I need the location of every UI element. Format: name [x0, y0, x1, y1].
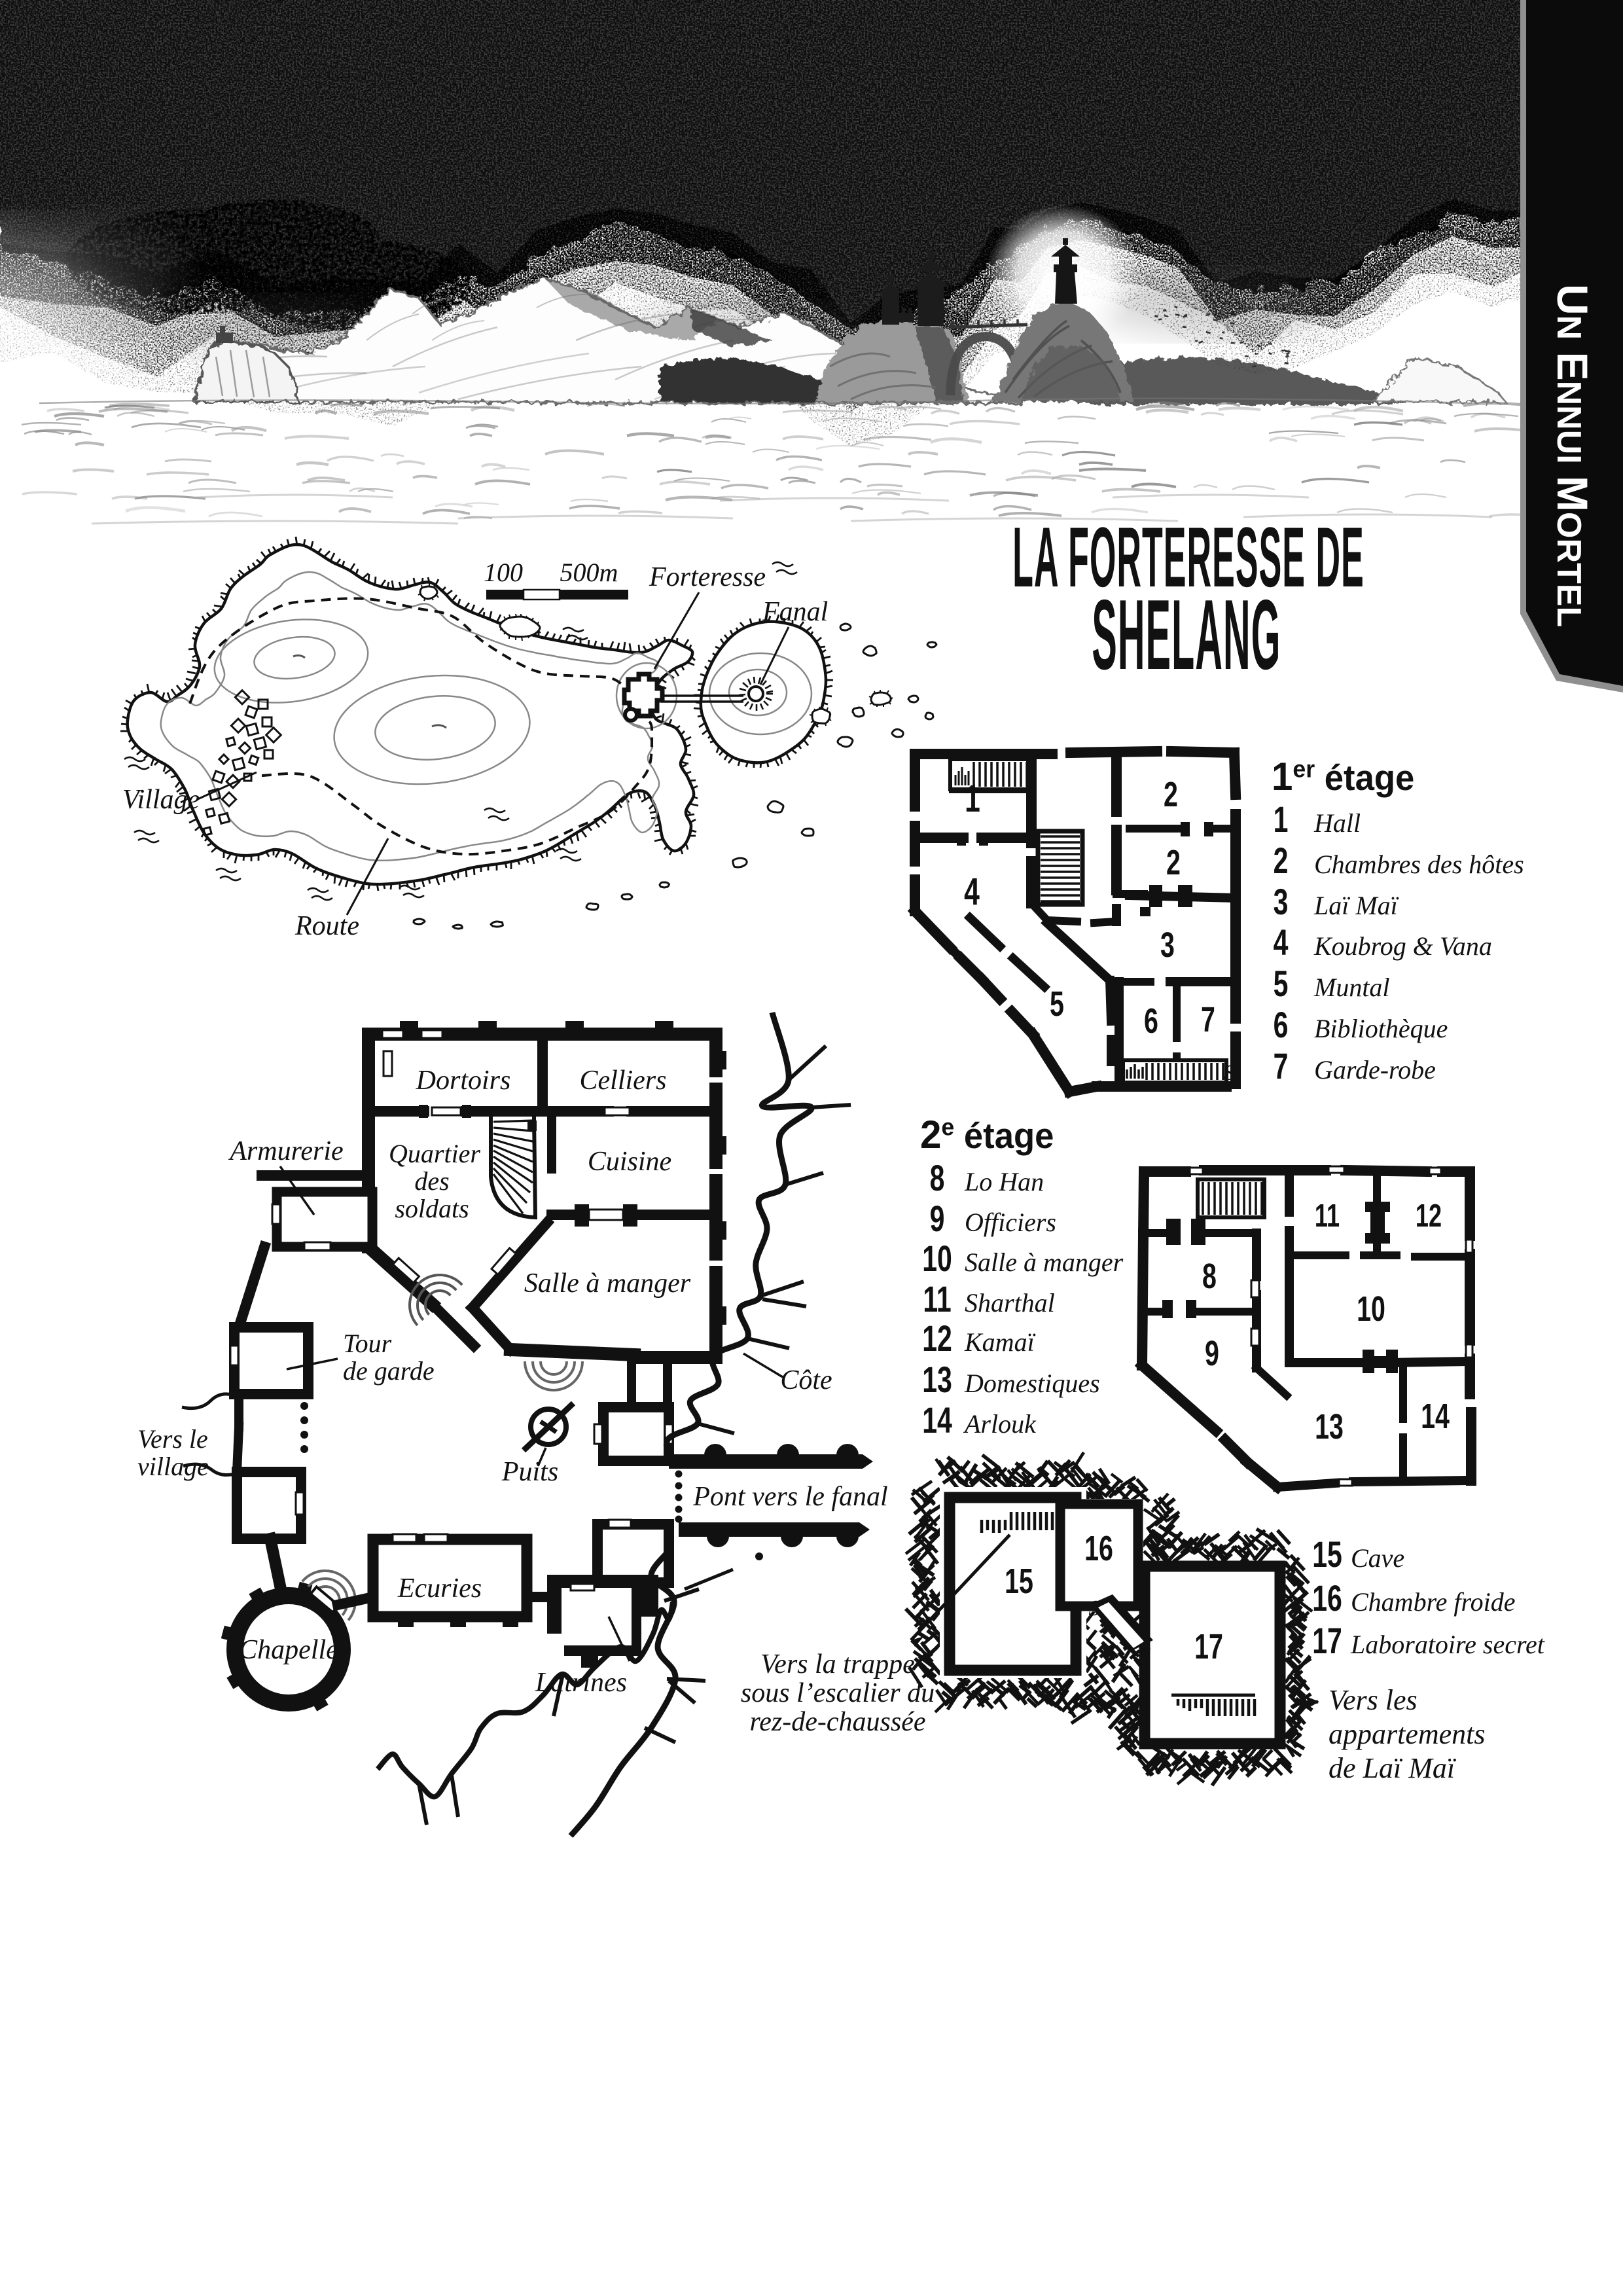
- svg-text:3: 3: [1160, 925, 1175, 964]
- svg-text:Officiers: Officiers: [965, 1208, 1056, 1237]
- svg-text:1: 1: [965, 778, 980, 820]
- svg-text:Tour: Tour: [343, 1329, 392, 1358]
- svg-text:12: 12: [1416, 1198, 1442, 1234]
- svg-text:5: 5: [1274, 964, 1289, 1005]
- svg-text:Vers la trappe: Vers la trappe: [760, 1649, 915, 1679]
- svg-text:Fanal: Fanal: [762, 597, 828, 627]
- svg-text:5: 5: [1050, 984, 1064, 1023]
- svg-text:Salle à manger: Salle à manger: [524, 1268, 691, 1299]
- svg-text:village: village: [137, 1452, 209, 1481]
- svg-text:10: 10: [1357, 1289, 1385, 1328]
- svg-text:Arlouk: Arlouk: [963, 1409, 1037, 1439]
- svg-text:500m: 500m: [560, 558, 618, 587]
- svg-text:des: des: [414, 1166, 449, 1196]
- svg-text:2: 2: [1164, 774, 1178, 814]
- svg-text:16: 16: [1084, 1528, 1113, 1568]
- svg-text:16: 16: [1312, 1579, 1342, 1619]
- svg-text:Celliers: Celliers: [580, 1066, 667, 1096]
- svg-text:14: 14: [1421, 1396, 1450, 1435]
- svg-text:Forteresse: Forteresse: [649, 562, 766, 592]
- svg-text:11: 11: [1315, 1198, 1340, 1234]
- svg-text:100: 100: [484, 558, 523, 587]
- svg-text:Laï Maï: Laï Maï: [1313, 891, 1399, 920]
- svg-text:2: 2: [1166, 842, 1181, 882]
- svg-text:8: 8: [930, 1158, 945, 1199]
- svg-text:10: 10: [922, 1239, 952, 1280]
- svg-text:Vers les: Vers les: [1329, 1684, 1418, 1716]
- svg-text:sous l’escalier du: sous l’escalier du: [741, 1678, 935, 1708]
- svg-text:1er étage: 1er étage: [1272, 754, 1414, 798]
- svg-text:de garde: de garde: [343, 1356, 435, 1386]
- svg-text:7: 7: [1201, 999, 1215, 1039]
- svg-text:15: 15: [1005, 1561, 1033, 1600]
- svg-text:15: 15: [1312, 1535, 1342, 1575]
- svg-text:S: S: [1089, 1596, 1100, 1621]
- svg-text:Pont vers le fanal: Pont vers le fanal: [692, 1482, 887, 1512]
- svg-text:Cuisine: Cuisine: [588, 1147, 671, 1177]
- svg-text:Cave: Cave: [1351, 1543, 1404, 1573]
- svg-text:Domestiques: Domestiques: [964, 1369, 1100, 1398]
- svg-text:4: 4: [1274, 923, 1289, 963]
- svg-text:Koubrog & Vana: Koubrog & Vana: [1313, 931, 1492, 961]
- svg-text:Côte: Côte: [780, 1365, 832, 1395]
- svg-text:Chambre froide: Chambre froide: [1351, 1587, 1515, 1617]
- svg-text:12: 12: [922, 1319, 952, 1359]
- svg-text:Armurerie: Armurerie: [228, 1136, 343, 1166]
- svg-text:Sharthal: Sharthal: [965, 1288, 1055, 1318]
- svg-text:9: 9: [930, 1199, 945, 1240]
- svg-text:13: 13: [922, 1360, 952, 1401]
- svg-text:appartements: appartements: [1329, 1718, 1486, 1750]
- svg-text:Village: Village: [122, 785, 200, 815]
- svg-text:Bibliothèque: Bibliothèque: [1314, 1014, 1448, 1043]
- svg-text:S: S: [1224, 1061, 1235, 1085]
- svg-text:Laboratoire secret: Laboratoire secret: [1350, 1630, 1545, 1659]
- svg-text:17: 17: [1194, 1626, 1223, 1666]
- svg-text:Quartier: Quartier: [389, 1139, 480, 1168]
- svg-text:17: 17: [1312, 1621, 1342, 1662]
- svg-text:Chapelle: Chapelle: [239, 1635, 338, 1665]
- svg-text:Puits: Puits: [501, 1457, 558, 1487]
- svg-text:SHELANG: SHELANG: [1092, 580, 1281, 691]
- svg-text:4: 4: [964, 870, 980, 913]
- svg-text:Dortoirs: Dortoirs: [416, 1066, 511, 1096]
- svg-text:Latrines: Latrines: [535, 1668, 627, 1698]
- svg-text:9: 9: [1205, 1333, 1219, 1372]
- svg-text:Chambres des hôtes: Chambres des hôtes: [1314, 850, 1524, 879]
- svg-text:13: 13: [1315, 1407, 1344, 1446]
- svg-text:Hall: Hall: [1313, 808, 1361, 838]
- svg-text:rez-de-chaussée: rez-de-chaussée: [749, 1707, 925, 1737]
- svg-text:14: 14: [922, 1401, 952, 1441]
- svg-text:Kamaï: Kamaï: [964, 1327, 1036, 1357]
- svg-text:de Laï Maï: de Laï Maï: [1329, 1752, 1457, 1784]
- svg-text:Route: Route: [294, 911, 359, 941]
- svg-text:3: 3: [1274, 882, 1289, 923]
- svg-text:Muntal: Muntal: [1313, 973, 1390, 1002]
- svg-text:Ecuries: Ecuries: [397, 1573, 482, 1604]
- svg-text:2: 2: [1274, 841, 1289, 882]
- svg-text:soldats: soldats: [395, 1194, 469, 1223]
- svg-text:Vers le: Vers le: [137, 1424, 208, 1454]
- svg-text:8: 8: [1202, 1256, 1217, 1295]
- svg-text:Garde-robe: Garde-robe: [1314, 1055, 1436, 1085]
- svg-text:Lo Han: Lo Han: [964, 1167, 1044, 1196]
- svg-text:Salle à manger: Salle à manger: [965, 1247, 1124, 1277]
- svg-text:7: 7: [1274, 1047, 1289, 1087]
- svg-text:6: 6: [1274, 1005, 1289, 1046]
- svg-text:1: 1: [1274, 800, 1289, 840]
- svg-text:S: S: [1140, 1643, 1151, 1668]
- svg-text:11: 11: [923, 1280, 951, 1320]
- svg-text:2e étage: 2e étage: [920, 1112, 1054, 1157]
- svg-text:6: 6: [1144, 1001, 1158, 1040]
